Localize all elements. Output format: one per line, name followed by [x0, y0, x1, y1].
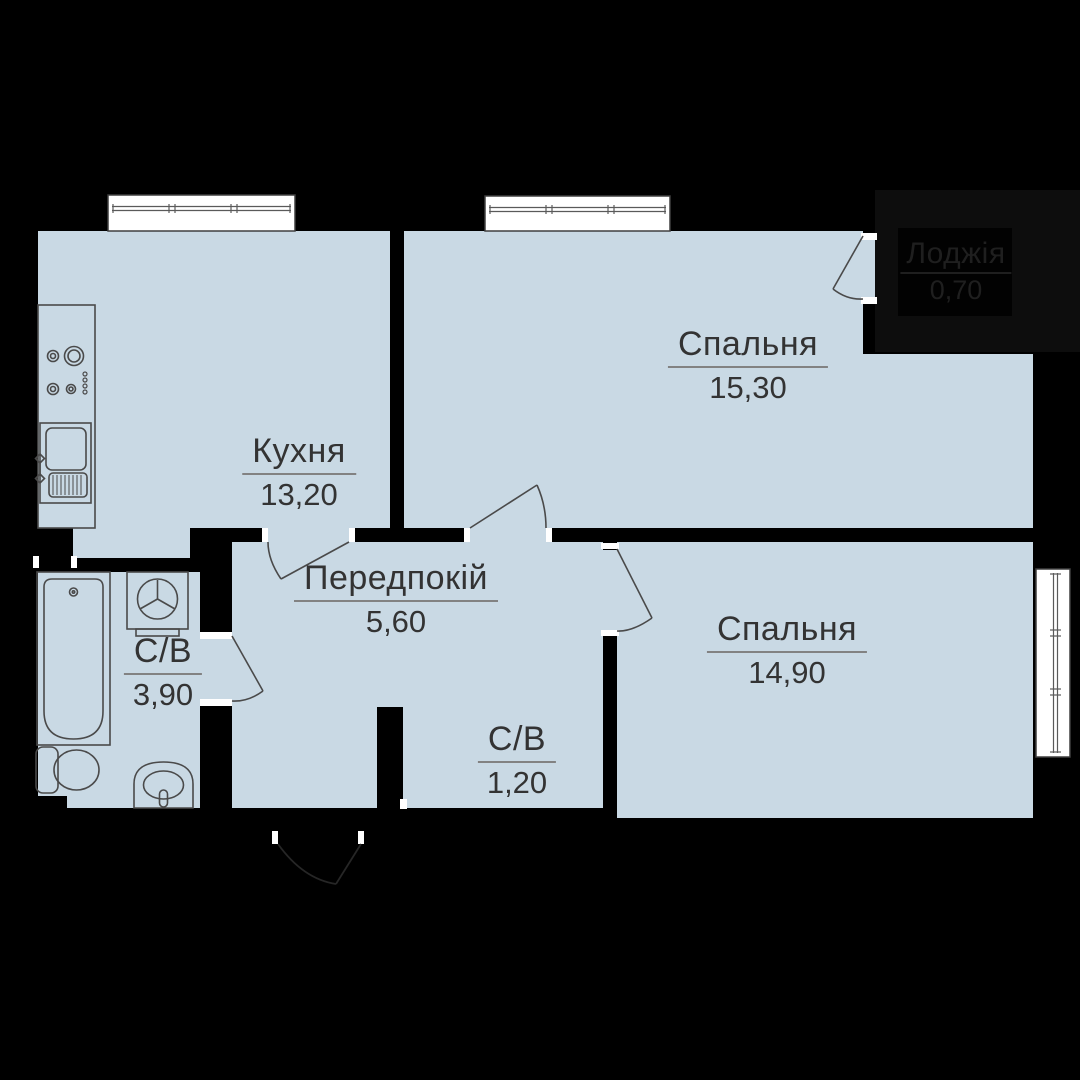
room-area: 1,20: [478, 767, 556, 800]
bedroom1-doorway: [470, 528, 546, 542]
room-name: Спальня: [707, 612, 867, 653]
room-label-wc: С/В 1,20: [478, 722, 556, 799]
kitchen-window-icon: [108, 195, 295, 231]
room-name: С/В: [124, 634, 202, 675]
room-name: Передпокій: [294, 561, 498, 602]
room-area: 0,70: [900, 276, 1011, 304]
room-area: 13,20: [242, 479, 356, 512]
bathroom-doorway: [200, 639, 232, 699]
room-label-bedroom-1: Спальня 15,30: [668, 327, 828, 404]
bedroom1-floor-ext: [863, 354, 1033, 528]
room-name: Спальня: [668, 327, 828, 368]
loggia-doorway: [863, 240, 875, 297]
kitchen-doorway: [268, 528, 349, 542]
room-label-bedroom-2: Спальня 14,90: [707, 612, 867, 689]
room-label-loggia: Лоджія 0,70: [900, 238, 1011, 304]
bedroom2-window-icon: [1036, 569, 1070, 757]
bedroom1-window-icon: [485, 196, 670, 231]
floor-plan-drawing: [0, 0, 1080, 1080]
room-area: 15,30: [668, 372, 828, 405]
room-name: Лоджія: [900, 238, 1011, 274]
entry-door-arc: [278, 844, 361, 884]
bedroom2-doorway: [603, 550, 617, 630]
room-label-kitchen: Кухня 13,20: [242, 434, 356, 511]
floor-plan: Кухня 13,20 Спальня 15,30 Передпокій 5,6…: [0, 0, 1080, 1080]
room-area: 5,60: [294, 606, 498, 639]
room-area: 3,90: [124, 679, 202, 712]
room-name: С/В: [478, 722, 556, 763]
kitchen-floor-strip: [73, 528, 190, 558]
room-area: 14,90: [707, 657, 867, 690]
room-name: Кухня: [242, 434, 356, 475]
room-label-hallway: Передпокій 5,60: [294, 561, 498, 638]
bathroom-wall-notch: [36, 796, 67, 808]
wc-partition-wall: [377, 707, 403, 808]
room-label-bathroom: С/В 3,90: [124, 634, 202, 711]
